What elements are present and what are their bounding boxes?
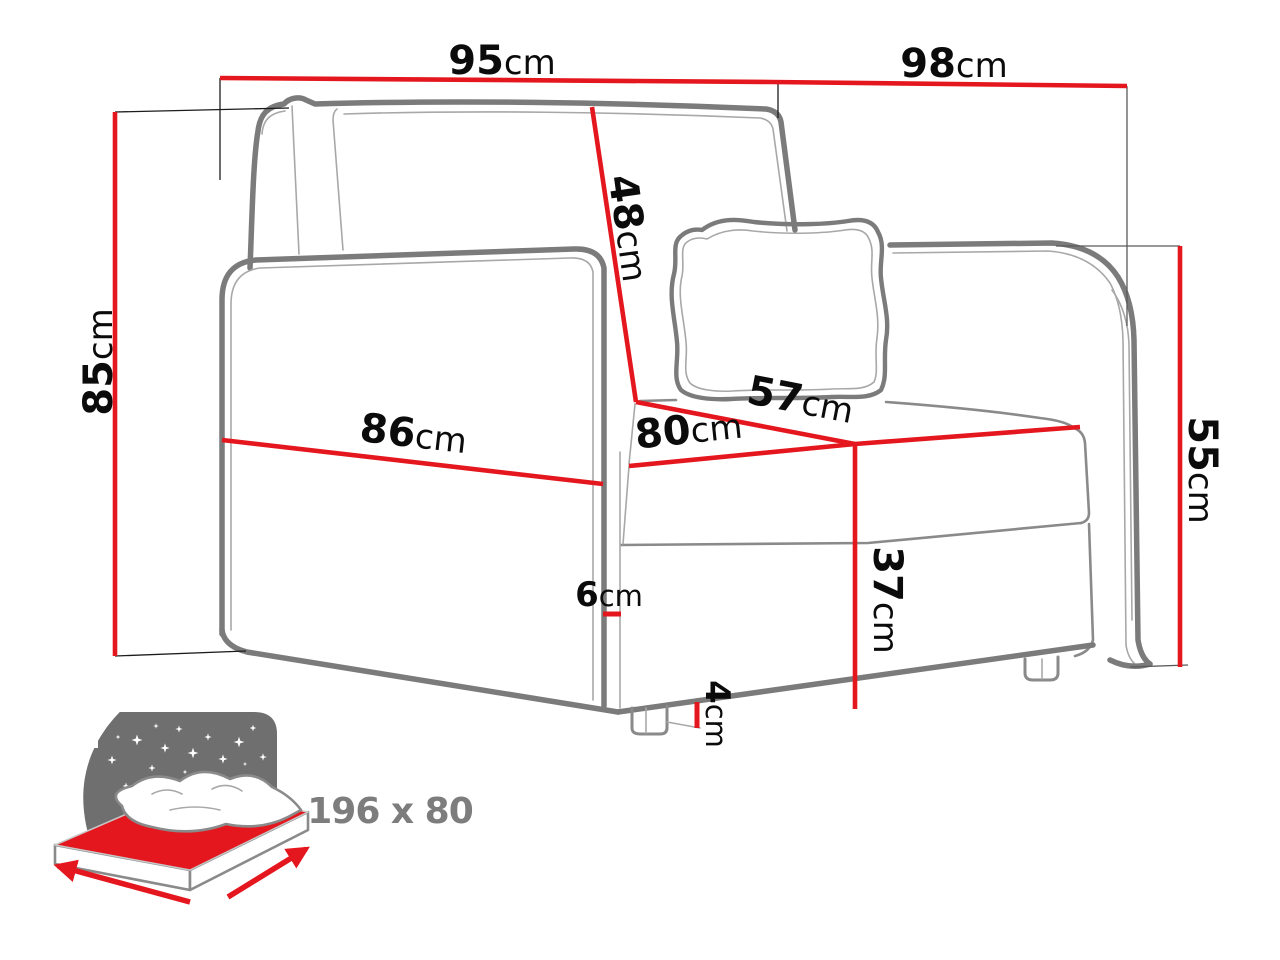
dim-label-98: 98cm — [900, 41, 1008, 87]
dim-label-86: 86cm — [357, 405, 469, 463]
sleeping-area-label: 196 x 80 — [307, 791, 473, 832]
dim-label-37: 37cm — [864, 546, 910, 654]
dim-label-95: 95cm — [448, 38, 556, 84]
chair-backrest — [250, 98, 795, 268]
diagram-canvas: 95cm 98cm 85cm 48cm 57cm 80cm 86cm 37cm … — [0, 0, 1280, 960]
dim-label-85: 85cm — [76, 308, 122, 416]
dim-label-48: 48cm — [599, 172, 660, 285]
chair-right-armrest — [890, 243, 1150, 666]
dimension-diagram: 95cm 98cm 85cm 48cm 57cm 80cm 86cm 37cm … — [0, 0, 1280, 960]
dimension-labels: 95cm 98cm 85cm 48cm 57cm 80cm 86cm 37cm … — [76, 38, 1225, 748]
extension-bottom-left — [115, 651, 246, 656]
dimension-lines — [115, 78, 1180, 728]
dim-label-6: 6cm — [575, 575, 643, 615]
extension-lines — [115, 78, 1188, 667]
dim-label-4: 4cm — [697, 680, 737, 748]
dim-label-57: 57cm — [743, 367, 857, 433]
dim-line-seat-right — [855, 427, 1080, 444]
sleeping-area-icon: 196 x 80 — [55, 700, 473, 902]
dim-label-55: 55cm — [1179, 416, 1225, 524]
